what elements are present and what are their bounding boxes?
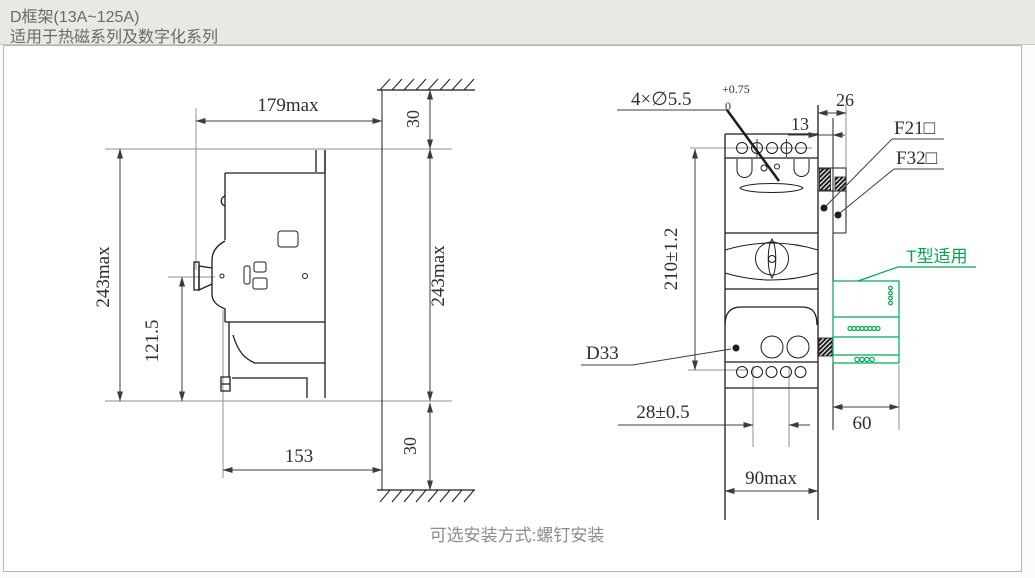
front-view: T型适用 4×∅5.5 +0.75 0 13 26 F21□ xyxy=(581,82,976,520)
dim-t-width-60: 60 xyxy=(853,413,872,434)
floor-hatch-icon xyxy=(377,490,475,502)
dim-handle-121-5: 121.5 xyxy=(142,320,163,363)
breaker-front-outline xyxy=(725,105,818,520)
d33-leader-dot xyxy=(733,345,740,352)
side-view-dimensions: 179max 243max 121.5 153 30 30 243max xyxy=(93,90,449,490)
label-model-d33: D33 xyxy=(586,343,619,364)
label-f21: F21□ xyxy=(894,118,936,139)
technical-drawing: 179max 243max 121.5 153 30 30 243max xyxy=(0,0,1035,578)
dim-width-90max: 90max xyxy=(745,468,797,489)
dim-height-243max-left: 243max xyxy=(93,246,114,308)
label-holes-tol-upper: +0.75 xyxy=(722,82,750,96)
mounting-bracket-bottom xyxy=(819,338,832,356)
t-type-block xyxy=(833,267,976,363)
f32-leader-dot xyxy=(835,212,842,219)
page: D框架(13A~125A) 适用于热磁系列及数字化系列 xyxy=(0,0,1035,578)
ceiling-hatch-icon xyxy=(377,79,475,90)
f21-leader-dot xyxy=(821,205,828,212)
dim-26: 26 xyxy=(836,90,854,110)
t-type-label: T型适用 xyxy=(906,247,967,266)
breaker-side-outline xyxy=(194,150,325,398)
dim-clearance-top-30: 30 xyxy=(403,110,423,128)
mounting-caption: 可选安装方式:螺钉安装 xyxy=(392,521,642,546)
dim-pitch-28: 28±0.5 xyxy=(636,402,689,423)
dim-depth-153: 153 xyxy=(285,446,314,467)
dim-width-179max: 179max xyxy=(257,95,319,116)
label-mounting-holes: 4×∅5.5 xyxy=(631,89,692,110)
construction-lines xyxy=(105,90,452,490)
dim-height-210: 210±1.2 xyxy=(661,228,682,291)
front-construction-lines xyxy=(688,104,899,447)
dim-height-243max-right: 243max xyxy=(428,245,449,307)
dim-clearance-bottom-30: 30 xyxy=(400,437,420,455)
side-view: 179max 243max 121.5 153 30 30 243max xyxy=(93,79,475,502)
label-f32: F32□ xyxy=(896,148,938,169)
dim-13: 13 xyxy=(791,114,809,134)
